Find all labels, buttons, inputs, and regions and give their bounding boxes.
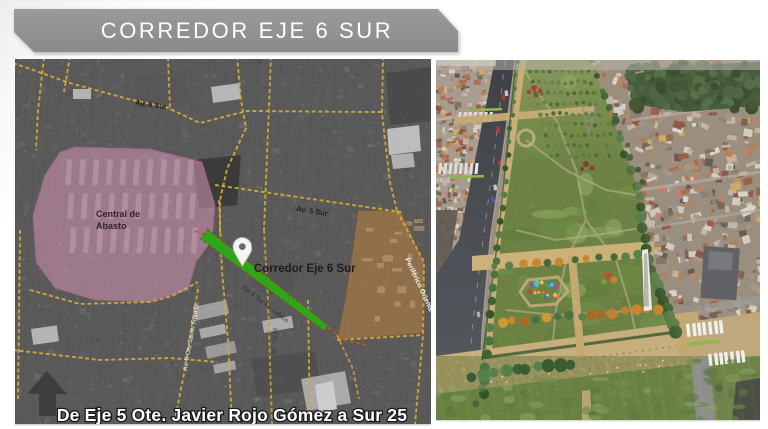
svg-text:De Eje 5 Ote. Javier Rojo Góme: De Eje 5 Ote. Javier Rojo Gómez a Sur 25	[57, 405, 407, 424]
svg-text:Corredor Eje 6 Sur: Corredor Eje 6 Sur	[254, 263, 356, 275]
svg-text:Central de: Central de	[96, 209, 140, 219]
svg-text:Abasto: Abasto	[96, 221, 127, 231]
